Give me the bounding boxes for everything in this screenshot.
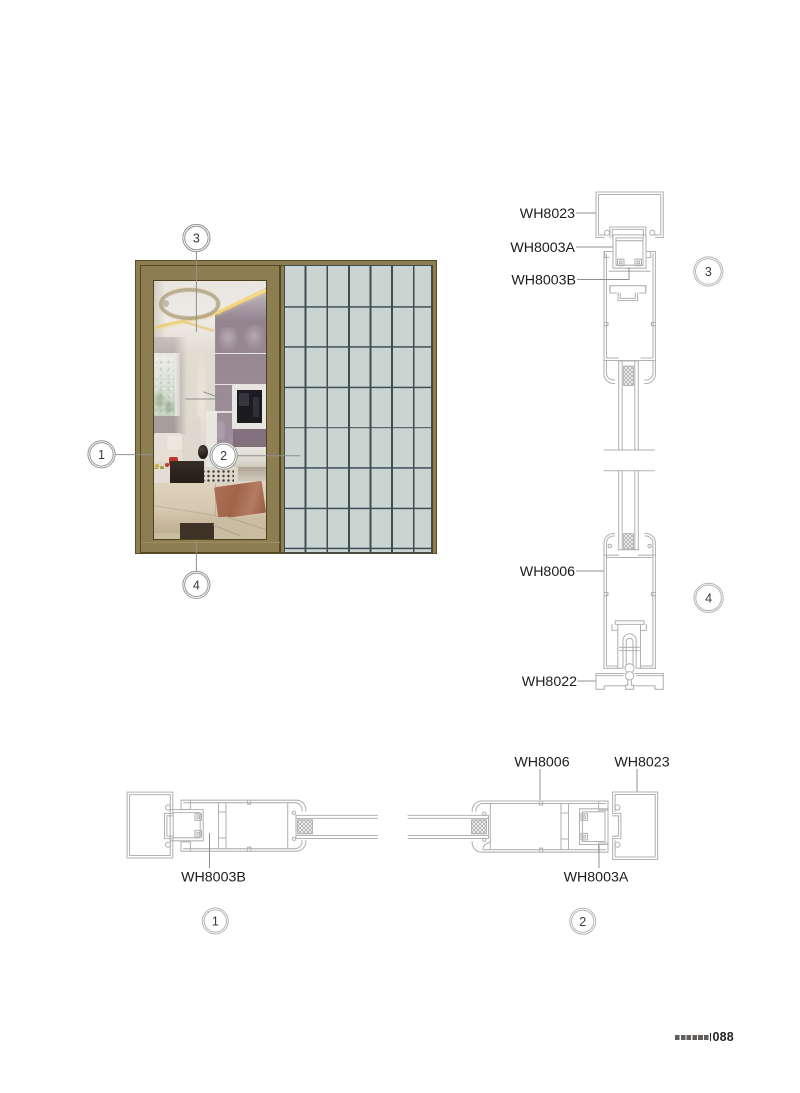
svg-text:WH8003B: WH8003B: [181, 870, 246, 886]
svg-text:4: 4: [705, 591, 712, 605]
svg-text:WH8023: WH8023: [520, 206, 575, 222]
svg-text:3: 3: [193, 232, 200, 246]
svg-text:1: 1: [98, 448, 105, 462]
svg-text:WH8003B: WH8003B: [511, 273, 576, 289]
svg-text:3: 3: [705, 265, 712, 279]
svg-text:WH8003A: WH8003A: [510, 240, 575, 256]
svg-text:WH8022: WH8022: [522, 674, 577, 690]
svg-text:2: 2: [220, 449, 227, 463]
svg-text:WH8003A: WH8003A: [564, 870, 629, 886]
svg-text:WH8006: WH8006: [520, 564, 575, 580]
svg-text:WH8006: WH8006: [514, 755, 569, 771]
svg-text:1: 1: [212, 915, 219, 929]
svg-text:2: 2: [579, 915, 586, 929]
svg-text:WH8023: WH8023: [614, 755, 669, 771]
svg-text:4: 4: [193, 578, 200, 592]
